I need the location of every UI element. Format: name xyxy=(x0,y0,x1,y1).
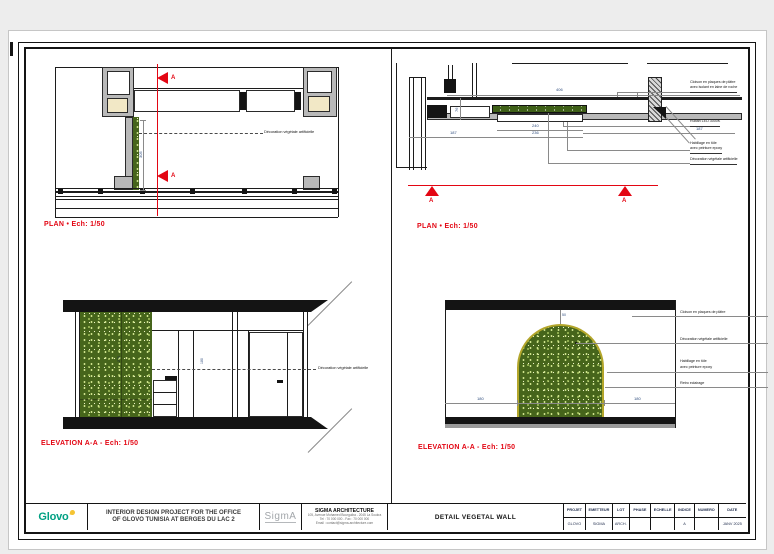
col-lot-value: ARCH. xyxy=(613,518,629,531)
col-date-value: JANV 2025 xyxy=(719,518,746,531)
title-block: Glovo INTERIOR DESIGN PROJECT FOR THE OF… xyxy=(26,503,746,530)
ceiling-band xyxy=(445,300,675,310)
title-table-value-row: GLOVO SIGMA ARCH. A JANV 2025 xyxy=(564,518,746,531)
col-projet-value: GLOVO xyxy=(564,518,586,531)
dimension-180-left: 180 xyxy=(477,397,484,401)
col-phase-header: PHASE xyxy=(630,504,652,517)
label-habillage-line1: Habillage en tôle xyxy=(680,359,707,365)
col-indice-value: A xyxy=(675,518,695,531)
title-table-cell: PROJET EMETTEUR LOT PHASE ECHELLE INDICE… xyxy=(564,504,746,530)
elevation-right-caption: ELEVATION A-A - Ech: 1/50 xyxy=(418,444,515,451)
label-retro-eclairage: Retro eclairage xyxy=(680,381,704,387)
col-emetteur-value: SIGMA xyxy=(586,518,613,531)
col-emetteur-header: EMETTEUR xyxy=(586,504,613,517)
project-description-line1: INTERIOR DESIGN PROJECT FOR THE OFFICE xyxy=(106,510,241,518)
col-date-header: DATE xyxy=(719,504,746,517)
sigma-logo-cell: SigmA xyxy=(260,504,302,530)
col-indice-header: INDICE xyxy=(675,504,695,517)
drawing-title: DETAIL VEGETAL WALL xyxy=(435,514,516,521)
elevation-right-drawing: 50 180 180 Cloison en plaques de plâtre … xyxy=(0,0,774,554)
col-numero-header: NUMERO xyxy=(695,504,719,517)
firm-email: Email : contact@sigma-architecture.com xyxy=(316,522,373,526)
col-echelle-header: ECHELLE xyxy=(651,504,675,517)
label-habillage-line2: avec peinture epoxy xyxy=(680,365,712,371)
col-numero-value xyxy=(695,518,719,531)
glovo-pin-icon xyxy=(69,509,75,515)
title-table: PROJET EMETTEUR LOT PHASE ECHELLE INDICE… xyxy=(564,504,746,530)
project-description-cell: INTERIOR DESIGN PROJECT FOR THE OFFICE O… xyxy=(88,504,260,530)
col-echelle-value xyxy=(651,518,675,531)
glovo-logo-cell: Glovo xyxy=(26,504,88,530)
drawing-title-cell: DETAIL VEGETAL WALL xyxy=(388,504,564,530)
col-phase-value xyxy=(630,518,652,531)
project-description-line2: OF GLOVO TUNISIA AT BERGES DU LAC 2 xyxy=(112,517,234,525)
drawing-sheet: 305 Décoration végétale artificielle A A… xyxy=(0,0,774,554)
label-cloison: Cloison en plaques de plâtre xyxy=(680,310,725,316)
dimension-180-right: 180 xyxy=(634,397,641,401)
col-projet-header: PROJET xyxy=(564,504,586,517)
glovo-logo-text: Glovo xyxy=(38,511,68,524)
title-table-header-row: PROJET EMETTEUR LOT PHASE ECHELLE INDICE… xyxy=(564,504,746,518)
sigma-logo: SigmA xyxy=(265,511,297,523)
label-decoration-vegetale: Décoration végétale artificielle xyxy=(680,337,727,343)
floor-skirt xyxy=(445,424,675,428)
col-lot-header: LOT xyxy=(613,504,629,517)
firm-info-cell: SIGMA ARCHITECTURE 105, Avenue Mohamed B… xyxy=(302,504,388,530)
floor-band xyxy=(445,417,675,424)
glovo-logo: Glovo xyxy=(38,511,74,524)
dimension-50: 50 xyxy=(562,313,566,317)
